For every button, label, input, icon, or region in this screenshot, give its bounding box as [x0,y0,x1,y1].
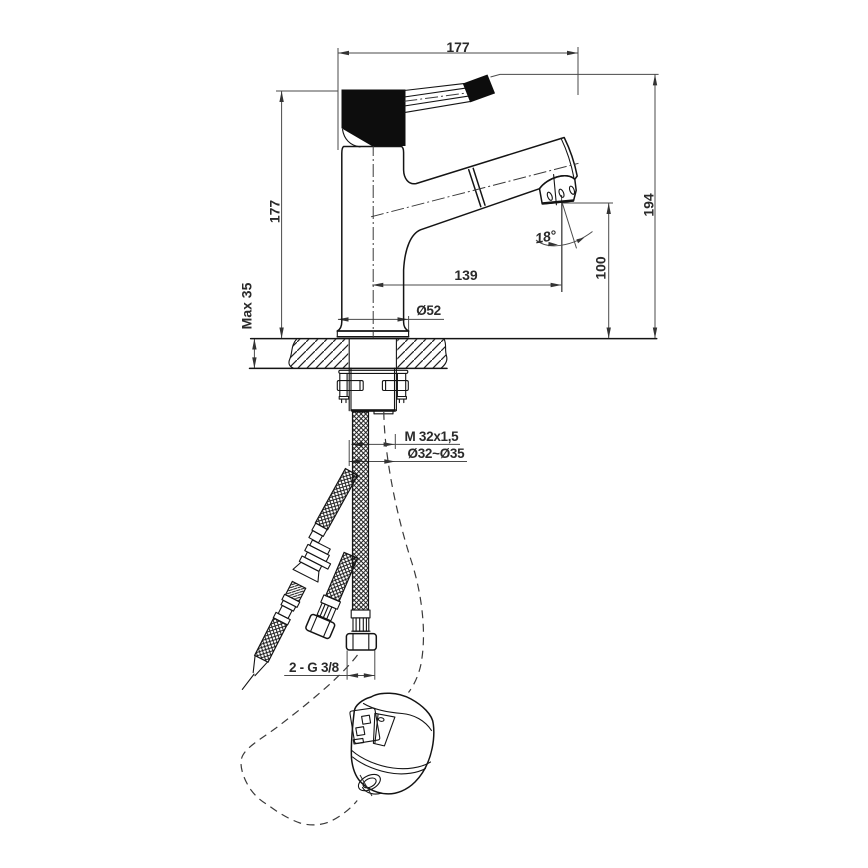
svg-text:194: 194 [641,193,657,217]
svg-text:Ø32~Ø35: Ø32~Ø35 [408,446,466,461]
svg-text:M 32x1,5: M 32x1,5 [405,429,460,444]
svg-text:Ø52: Ø52 [416,303,441,318]
svg-text:139: 139 [454,267,478,283]
svg-text:2 - G 3/8: 2 - G 3/8 [289,660,340,675]
svg-text:177: 177 [446,39,470,55]
svg-text:177: 177 [267,200,283,224]
svg-text:100: 100 [593,256,609,280]
svg-text:Max 35: Max 35 [239,282,255,329]
